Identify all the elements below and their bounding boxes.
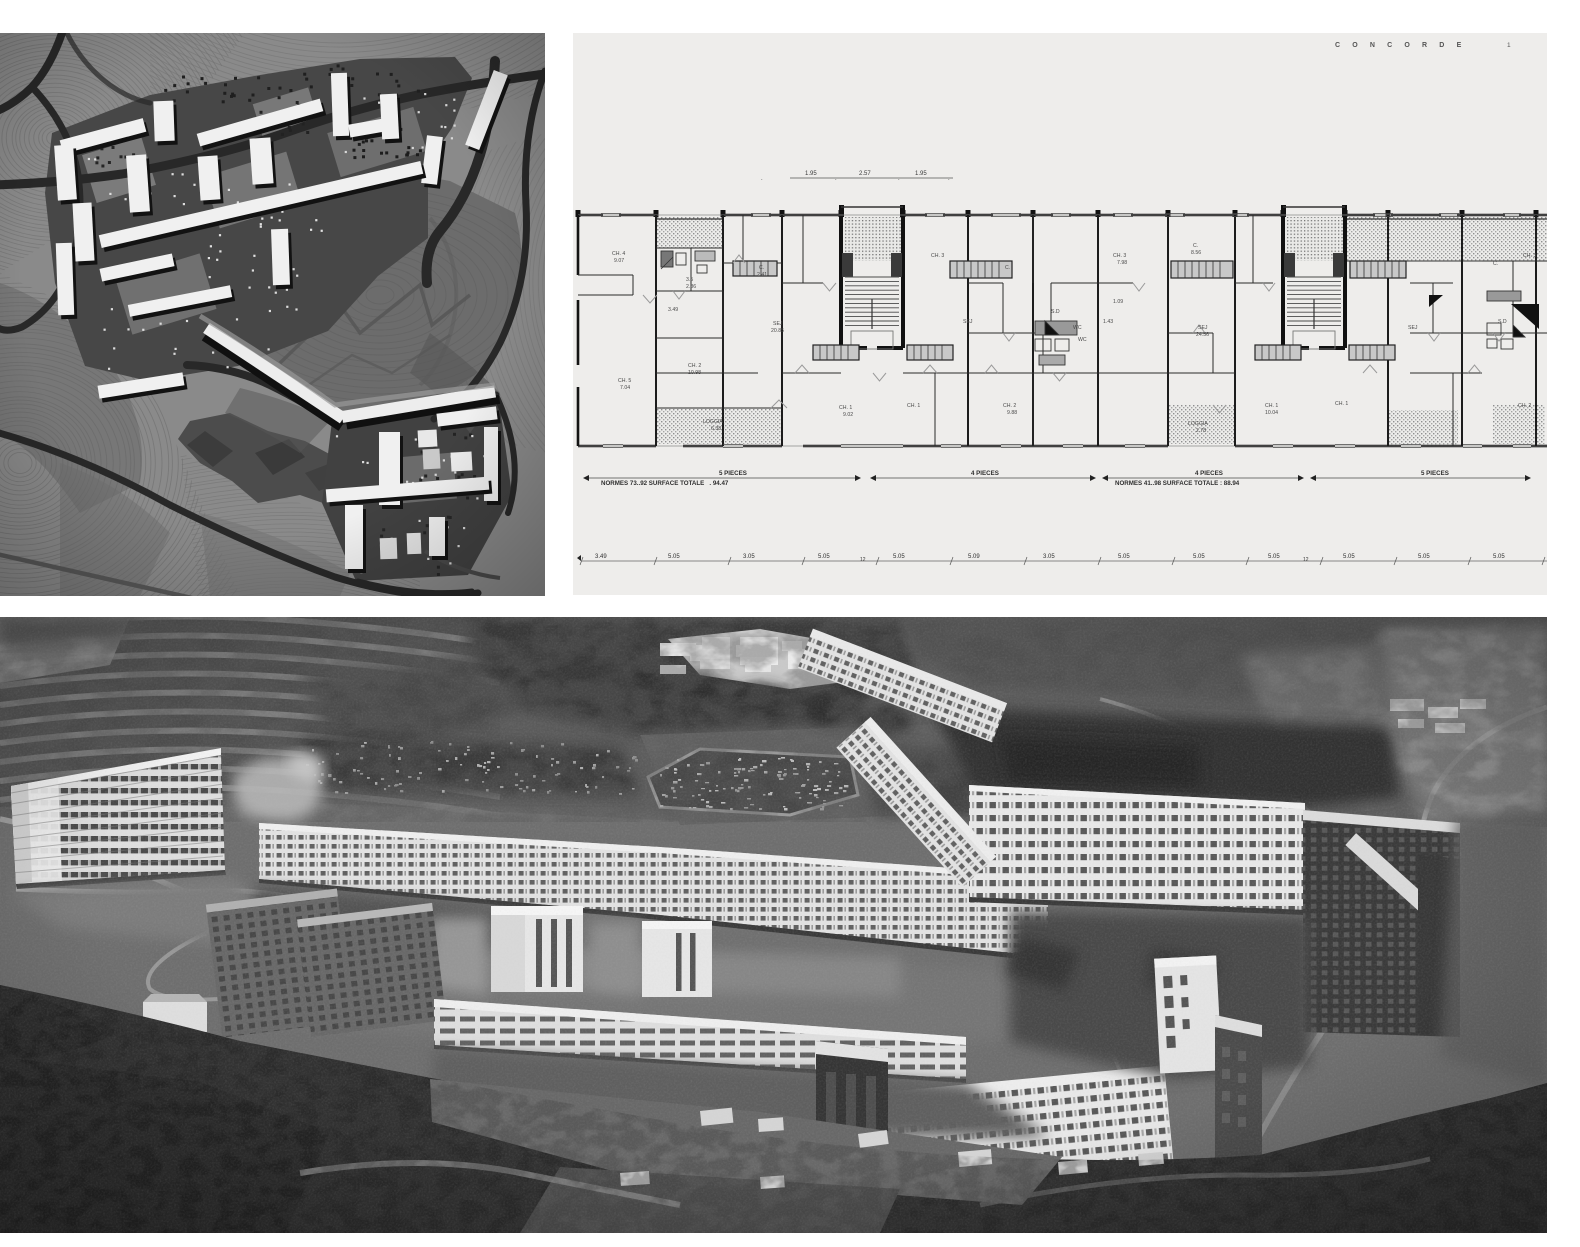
svg-text:CH. 2: CH. 2 (1003, 403, 1016, 409)
svg-text:24.56: 24.56 (1196, 332, 1209, 338)
svg-text:C.: C. (1005, 265, 1010, 271)
svg-text:7.98: 7.98 (1117, 260, 1127, 266)
svg-text:1: 1 (1507, 42, 1511, 49)
svg-text:5.05: 5.05 (668, 554, 680, 560)
svg-text:CH. 1: CH. 1 (1335, 401, 1348, 407)
svg-text:2.41: 2.41 (757, 272, 767, 278)
svg-text:WC: WC (1078, 337, 1087, 343)
svg-text:1.95: 1.95 (805, 171, 817, 177)
svg-text:CH. 3: CH. 3 (1523, 253, 1536, 259)
svg-text:1.43: 1.43 (1103, 319, 1113, 325)
svg-text:C.: C. (1493, 261, 1498, 267)
svg-text:5.05: 5.05 (1118, 554, 1130, 560)
svg-text:SEJ: SEJ (963, 319, 973, 325)
svg-text:5.05: 5.05 (1193, 554, 1205, 560)
svg-text:SEJ: SEJ (1408, 325, 1418, 331)
svg-text:5.05: 5.05 (1343, 554, 1355, 560)
svg-text:10.98: 10.98 (688, 370, 701, 376)
svg-text:5.05: 5.05 (893, 554, 905, 560)
svg-text:SEJ: SEJ (1198, 325, 1208, 331)
svg-text:8.56: 8.56 (1191, 250, 1201, 256)
svg-text:NORMES 41..98 SURFACE TOTALE :: NORMES 41..98 SURFACE TOTALE : 88.94 (1115, 480, 1240, 487)
svg-text:5.05: 5.05 (1418, 554, 1430, 560)
svg-text:C.: C. (759, 265, 764, 271)
svg-text:1.95: 1.95 (915, 171, 927, 177)
svg-text:5.05: 5.05 (818, 554, 830, 560)
svg-text:CONCORDE: CONCORDE (1335, 42, 1473, 49)
svg-text:C.: C. (1193, 243, 1198, 249)
svg-text:CH. 3: CH. 3 (931, 253, 944, 259)
svg-text:4 PIECES: 4 PIECES (971, 470, 999, 477)
svg-text:5.05: 5.05 (1493, 554, 1505, 560)
svg-text:5.09: 5.09 (968, 554, 980, 560)
svg-text:NORMES 73..92 SURFACE TOTALE: NORMES 73..92 SURFACE TOTALE . 94.47 (601, 480, 729, 487)
svg-text:CH. 1: CH. 1 (907, 403, 920, 409)
svg-text:3.05: 3.05 (743, 554, 755, 560)
svg-text:CH. 4: CH. 4 (612, 251, 625, 257)
svg-text:CH. 2: CH. 2 (688, 363, 701, 369)
svg-text:1.09: 1.09 (1113, 299, 1123, 305)
svg-text:9.88: 9.88 (1007, 410, 1017, 416)
svg-text:10.04: 10.04 (1265, 410, 1278, 416)
svg-text:20.85: 20.85 (771, 328, 784, 334)
svg-text:3.49: 3.49 (668, 307, 678, 313)
svg-text:CH. 5: CH. 5 (618, 378, 631, 384)
svg-text:S.D: S.D (1498, 319, 1507, 325)
svg-text:2.86: 2.86 (686, 284, 696, 290)
svg-text:2.57: 2.57 (859, 171, 871, 177)
svg-text:6.38: 6.38 (711, 426, 721, 432)
svg-text:LOGGIA: LOGGIA (703, 419, 723, 425)
svg-text:2.78: 2.78 (1196, 428, 1206, 434)
svg-text:5 PIECES: 5 PIECES (719, 470, 747, 477)
svg-text:5.05: 5.05 (1268, 554, 1280, 560)
svg-text:CH. 1: CH. 1 (839, 405, 852, 411)
svg-text:S.D: S.D (1051, 309, 1060, 315)
svg-text:3.5: 3.5 (686, 277, 693, 283)
svg-text:CH. 2: CH. 2 (1518, 403, 1531, 409)
svg-text:9.02: 9.02 (843, 412, 853, 418)
svg-text:SEJ: SEJ (773, 321, 783, 327)
svg-text:5 PIECES: 5 PIECES (1421, 470, 1449, 477)
svg-text:4 PIECES: 4 PIECES (1195, 470, 1223, 477)
svg-text:LOGGIA: LOGGIA (1188, 421, 1208, 427)
svg-text:9.07: 9.07 (614, 258, 624, 264)
svg-text:7.04: 7.04 (620, 385, 630, 391)
svg-text:WC: WC (1073, 325, 1082, 331)
svg-text:12: 12 (860, 557, 866, 563)
svg-text:CH. 1: CH. 1 (1265, 403, 1278, 409)
svg-text:3.49: 3.49 (595, 554, 607, 560)
svg-text:CH. 3: CH. 3 (1113, 253, 1126, 259)
svg-text:3.05: 3.05 (1043, 554, 1055, 560)
svg-text:12: 12 (1303, 557, 1309, 563)
